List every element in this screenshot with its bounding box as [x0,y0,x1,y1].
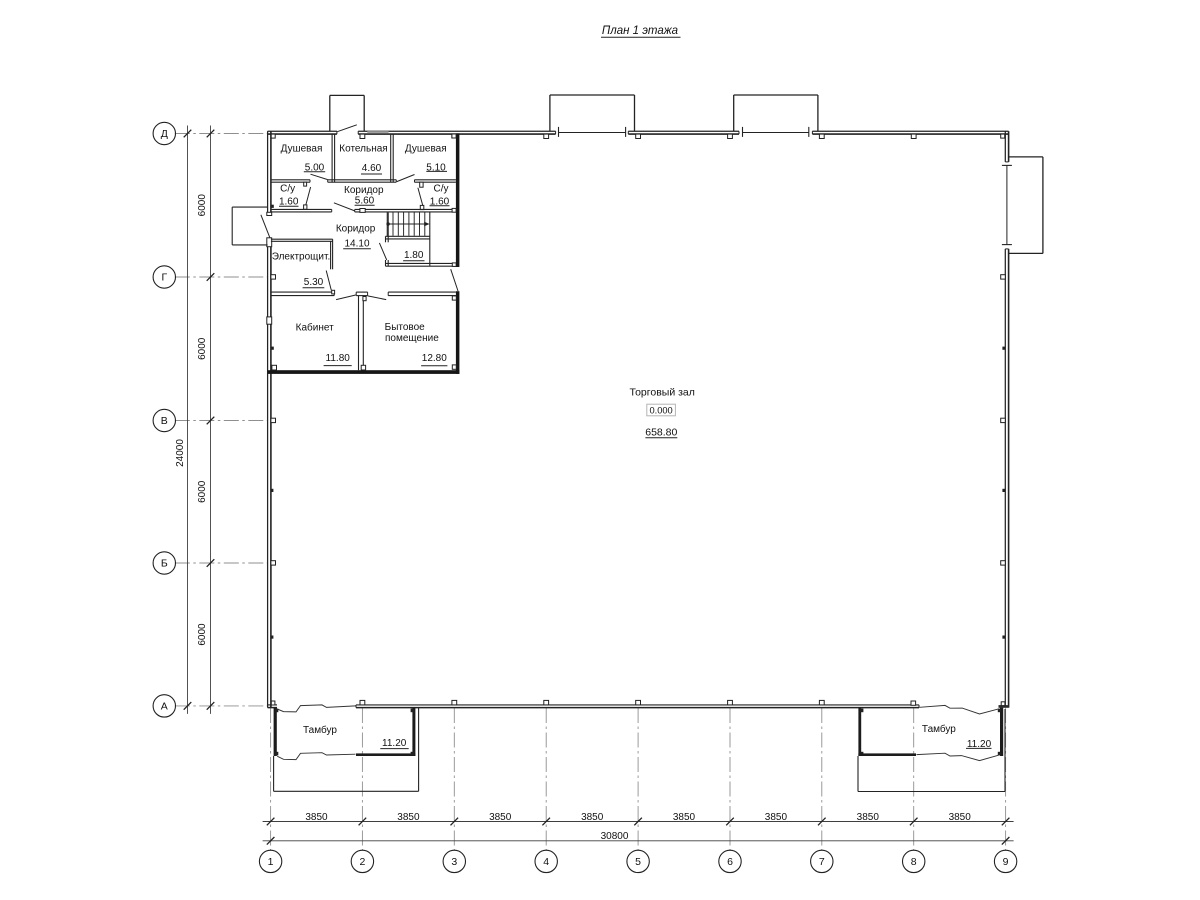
svg-text:11.20: 11.20 [382,738,407,749]
svg-text:Тамбур: Тамбур [922,723,956,735]
svg-text:Коридор: Коридор [344,185,384,196]
svg-text:3850: 3850 [857,812,880,823]
svg-text:А: А [161,701,168,713]
svg-text:24000: 24000 [175,439,186,467]
svg-text:3850: 3850 [673,812,696,823]
svg-text:Коридор: Коридор [336,223,376,234]
svg-text:3850: 3850 [397,812,420,823]
svg-text:9: 9 [1003,856,1009,868]
svg-text:1.80: 1.80 [404,250,424,261]
svg-text:658.80: 658.80 [645,426,677,438]
svg-text:8: 8 [911,856,917,868]
svg-text:С/у: С/у [434,184,449,195]
svg-text:5: 5 [635,856,641,868]
svg-text:3850: 3850 [305,812,328,823]
svg-text:3850: 3850 [949,812,972,823]
svg-text:5.30: 5.30 [304,277,324,288]
svg-text:Душевая: Душевая [281,144,323,155]
svg-text:3850: 3850 [765,812,788,823]
svg-text:Тамбур: Тамбур [303,724,337,736]
svg-text:Бытовое: Бытовое [385,322,426,333]
svg-text:3: 3 [451,856,457,868]
svg-text:30800: 30800 [601,831,629,842]
svg-text:1: 1 [268,856,274,868]
svg-text:Д: Д [161,128,168,140]
svg-text:Котельная: Котельная [339,144,387,155]
svg-text:6: 6 [727,856,733,868]
svg-text:12.80: 12.80 [422,353,447,364]
svg-text:4: 4 [543,856,549,868]
svg-text:В: В [161,415,168,427]
svg-text:11.80: 11.80 [326,353,351,364]
svg-text:3850: 3850 [581,812,604,823]
svg-text:Кабинет: Кабинет [296,322,334,334]
svg-text:Электрощит.: Электрощит. [272,252,331,263]
svg-text:2: 2 [359,856,365,868]
svg-text:помещение: помещение [385,333,439,344]
svg-text:Торговый зал: Торговый зал [629,387,694,399]
svg-text:6000: 6000 [197,623,208,646]
svg-text:Г: Г [161,272,167,284]
svg-text:0.000: 0.000 [649,405,672,415]
svg-text:6000: 6000 [197,194,208,217]
svg-text:Душевая: Душевая [405,144,447,155]
svg-text:С/у: С/у [280,184,295,195]
svg-text:Б: Б [161,558,168,570]
svg-text:3850: 3850 [489,812,512,823]
svg-text:План 1 этажа: План 1 этажа [602,25,678,37]
svg-text:6000: 6000 [197,480,208,503]
svg-text:14.10: 14.10 [344,239,369,250]
svg-text:6000: 6000 [197,337,208,360]
svg-text:4.60: 4.60 [362,163,382,174]
svg-text:7: 7 [819,856,825,868]
